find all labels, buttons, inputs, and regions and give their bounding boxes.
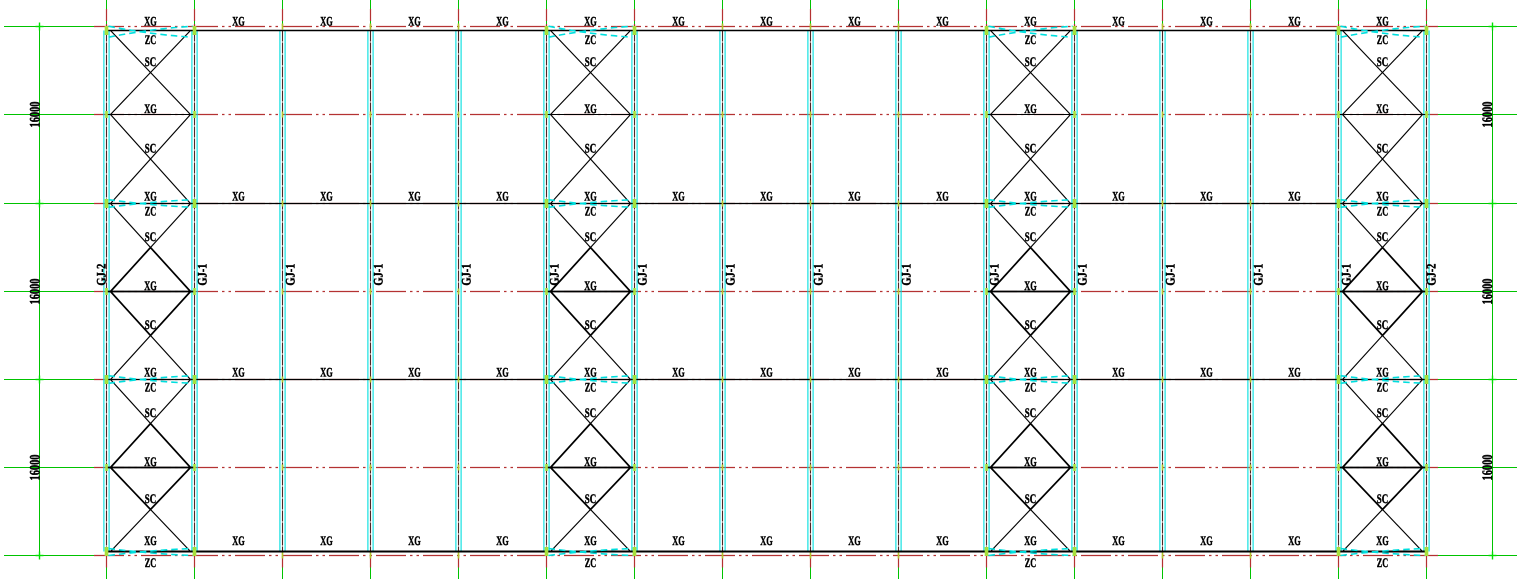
svg-text:GJ-1: GJ-1 bbox=[459, 264, 474, 286]
svg-text:XG: XG bbox=[144, 13, 157, 28]
svg-text:XG: XG bbox=[936, 13, 949, 28]
svg-text:SC: SC bbox=[1025, 317, 1037, 332]
svg-text:XG: XG bbox=[232, 188, 245, 203]
svg-text:ZC: ZC bbox=[1377, 204, 1389, 219]
svg-text:XG: XG bbox=[1112, 13, 1125, 28]
svg-text:SC: SC bbox=[145, 405, 157, 420]
svg-text:XG: XG bbox=[760, 13, 773, 28]
svg-text:XG: XG bbox=[584, 13, 597, 28]
svg-text:XG: XG bbox=[584, 454, 597, 469]
svg-text:ZC: ZC bbox=[1377, 32, 1389, 47]
svg-text:SC: SC bbox=[1025, 141, 1037, 156]
svg-text:XG: XG bbox=[1288, 188, 1301, 203]
svg-text:GJ-1: GJ-1 bbox=[987, 264, 1002, 286]
svg-text:ZC: ZC bbox=[145, 380, 157, 395]
svg-text:XG: XG bbox=[232, 533, 245, 548]
svg-text:XG: XG bbox=[232, 13, 245, 28]
svg-text:GJ-1: GJ-1 bbox=[1163, 264, 1178, 286]
svg-text:XG: XG bbox=[672, 13, 685, 28]
svg-text:16000: 16000 bbox=[1480, 455, 1496, 481]
svg-text:XG: XG bbox=[1024, 101, 1037, 116]
svg-text:XG: XG bbox=[1024, 188, 1037, 203]
svg-text:XG: XG bbox=[584, 533, 597, 548]
svg-text:XG: XG bbox=[1288, 364, 1301, 379]
svg-text:SC: SC bbox=[145, 317, 157, 332]
svg-text:XG: XG bbox=[496, 13, 509, 28]
svg-text:GJ-1: GJ-1 bbox=[1251, 264, 1266, 286]
svg-text:XG: XG bbox=[320, 13, 333, 28]
svg-text:XG: XG bbox=[1288, 13, 1301, 28]
svg-text:XG: XG bbox=[1288, 533, 1301, 548]
svg-text:XG: XG bbox=[1200, 13, 1213, 28]
svg-text:GJ-2: GJ-2 bbox=[1424, 264, 1439, 286]
svg-text:SC: SC bbox=[1377, 405, 1389, 420]
svg-text:XG: XG bbox=[760, 364, 773, 379]
svg-text:SC: SC bbox=[1377, 491, 1389, 506]
svg-text:SC: SC bbox=[585, 229, 597, 244]
svg-text:ZC: ZC bbox=[585, 204, 597, 219]
svg-text:SC: SC bbox=[145, 491, 157, 506]
svg-text:XG: XG bbox=[848, 364, 861, 379]
svg-text:XG: XG bbox=[848, 13, 861, 28]
svg-text:XG: XG bbox=[584, 364, 597, 379]
svg-text:SC: SC bbox=[1377, 141, 1389, 156]
svg-text:GJ-1: GJ-1 bbox=[723, 264, 738, 286]
svg-text:XG: XG bbox=[496, 188, 509, 203]
svg-text:ZC: ZC bbox=[1025, 204, 1037, 219]
svg-text:XG: XG bbox=[1112, 188, 1125, 203]
svg-text:XG: XG bbox=[1376, 13, 1389, 28]
svg-text:ZC: ZC bbox=[1377, 380, 1389, 395]
svg-text:XG: XG bbox=[936, 533, 949, 548]
svg-text:GJ-1: GJ-1 bbox=[1075, 264, 1090, 286]
svg-text:XG: XG bbox=[1112, 364, 1125, 379]
svg-text:GJ-1: GJ-1 bbox=[899, 264, 914, 286]
svg-text:ZC: ZC bbox=[145, 555, 157, 570]
svg-text:XG: XG bbox=[936, 364, 949, 379]
svg-text:GJ-1: GJ-1 bbox=[811, 264, 826, 286]
svg-text:XG: XG bbox=[1112, 533, 1125, 548]
svg-text:XG: XG bbox=[408, 364, 421, 379]
svg-text:XG: XG bbox=[672, 188, 685, 203]
svg-text:XG: XG bbox=[232, 364, 245, 379]
svg-text:XG: XG bbox=[848, 188, 861, 203]
svg-text:SC: SC bbox=[585, 54, 597, 69]
svg-text:16000: 16000 bbox=[1480, 102, 1496, 128]
svg-text:XG: XG bbox=[1376, 454, 1389, 469]
svg-text:GJ-1: GJ-1 bbox=[635, 264, 650, 286]
svg-text:XG: XG bbox=[936, 188, 949, 203]
svg-text:ZC: ZC bbox=[585, 32, 597, 47]
svg-text:SC: SC bbox=[1377, 229, 1389, 244]
svg-text:XG: XG bbox=[1376, 364, 1389, 379]
svg-text:SC: SC bbox=[1025, 229, 1037, 244]
svg-text:SC: SC bbox=[145, 229, 157, 244]
svg-text:XG: XG bbox=[144, 533, 157, 548]
svg-text:SC: SC bbox=[145, 54, 157, 69]
svg-text:SC: SC bbox=[1025, 491, 1037, 506]
svg-text:ZC: ZC bbox=[585, 380, 597, 395]
svg-text:XG: XG bbox=[1376, 278, 1389, 293]
svg-text:SC: SC bbox=[1377, 317, 1389, 332]
svg-text:SC: SC bbox=[585, 317, 597, 332]
svg-text:ZC: ZC bbox=[145, 204, 157, 219]
svg-text:16000: 16000 bbox=[28, 279, 44, 305]
svg-text:GJ-1: GJ-1 bbox=[1339, 264, 1354, 286]
svg-text:XG: XG bbox=[1024, 533, 1037, 548]
svg-text:XG: XG bbox=[760, 188, 773, 203]
svg-text:XG: XG bbox=[584, 278, 597, 293]
svg-text:ZC: ZC bbox=[145, 32, 157, 47]
svg-text:XG: XG bbox=[320, 188, 333, 203]
svg-text:SC: SC bbox=[1025, 54, 1037, 69]
svg-text:XG: XG bbox=[672, 533, 685, 548]
svg-text:XG: XG bbox=[144, 454, 157, 469]
svg-text:SC: SC bbox=[1377, 54, 1389, 69]
svg-text:XG: XG bbox=[496, 364, 509, 379]
svg-text:XG: XG bbox=[408, 188, 421, 203]
svg-text:XG: XG bbox=[1200, 188, 1213, 203]
svg-text:XG: XG bbox=[320, 533, 333, 548]
svg-text:SC: SC bbox=[585, 491, 597, 506]
svg-text:XG: XG bbox=[1024, 13, 1037, 28]
svg-text:ZC: ZC bbox=[1025, 555, 1037, 570]
svg-text:16000: 16000 bbox=[28, 455, 44, 481]
svg-text:XG: XG bbox=[848, 533, 861, 548]
svg-text:SC: SC bbox=[585, 405, 597, 420]
svg-text:GJ-1: GJ-1 bbox=[371, 264, 386, 286]
svg-text:XG: XG bbox=[496, 533, 509, 548]
svg-text:XG: XG bbox=[408, 13, 421, 28]
svg-text:XG: XG bbox=[320, 364, 333, 379]
svg-text:SC: SC bbox=[145, 141, 157, 156]
svg-text:XG: XG bbox=[1376, 188, 1389, 203]
svg-text:16000: 16000 bbox=[1480, 279, 1496, 305]
svg-text:GJ-1: GJ-1 bbox=[195, 264, 210, 286]
svg-text:GJ-2: GJ-2 bbox=[94, 264, 109, 286]
svg-text:XG: XG bbox=[1024, 454, 1037, 469]
svg-text:XG: XG bbox=[760, 533, 773, 548]
svg-text:XG: XG bbox=[1376, 533, 1389, 548]
svg-text:SC: SC bbox=[585, 141, 597, 156]
svg-text:ZC: ZC bbox=[585, 555, 597, 570]
svg-text:XG: XG bbox=[1024, 278, 1037, 293]
svg-text:XG: XG bbox=[1376, 101, 1389, 116]
svg-text:XG: XG bbox=[1200, 533, 1213, 548]
svg-text:XG: XG bbox=[144, 364, 157, 379]
svg-text:ZC: ZC bbox=[1025, 32, 1037, 47]
svg-text:XG: XG bbox=[144, 278, 157, 293]
svg-text:16000: 16000 bbox=[28, 102, 44, 128]
svg-text:GJ-1: GJ-1 bbox=[547, 264, 562, 286]
svg-text:XG: XG bbox=[672, 364, 685, 379]
svg-text:XG: XG bbox=[408, 533, 421, 548]
svg-text:XG: XG bbox=[584, 188, 597, 203]
svg-text:XG: XG bbox=[144, 101, 157, 116]
svg-text:GJ-1: GJ-1 bbox=[283, 264, 298, 286]
svg-text:XG: XG bbox=[584, 101, 597, 116]
svg-text:ZC: ZC bbox=[1025, 380, 1037, 395]
svg-text:XG: XG bbox=[1024, 364, 1037, 379]
svg-text:ZC: ZC bbox=[1377, 555, 1389, 570]
svg-text:XG: XG bbox=[144, 188, 157, 203]
svg-text:SC: SC bbox=[1025, 405, 1037, 420]
svg-text:XG: XG bbox=[1200, 364, 1213, 379]
